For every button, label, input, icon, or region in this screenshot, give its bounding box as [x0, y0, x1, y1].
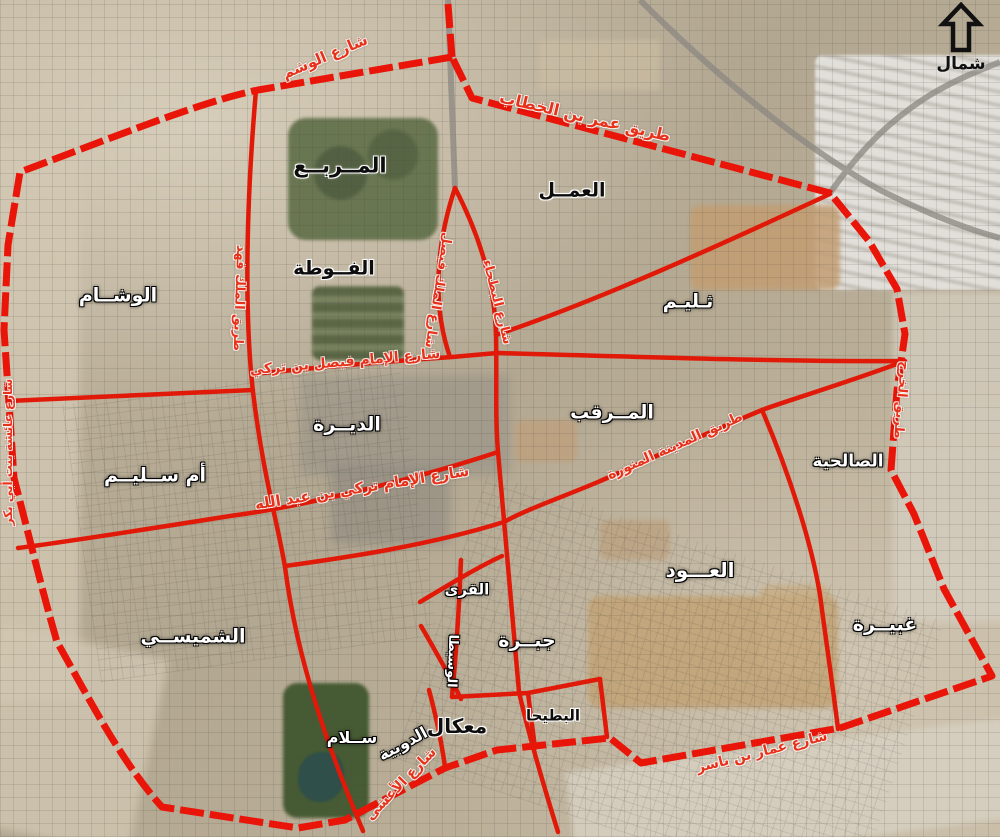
district-label-al-marqab: المــرقب	[570, 404, 654, 423]
wisham-umm-sulaim-divider-line	[8, 390, 253, 401]
king-fahd-road-label: طريق الملك فهد	[231, 245, 248, 351]
district-label-ash-shumaisi: الشميســي	[140, 628, 245, 647]
district-label-al-butayha: البطيحا	[526, 709, 580, 724]
district-label-umm-sulaim: أم ســليــم	[104, 467, 206, 486]
district-label-al-wisham: الوشــام	[79, 287, 157, 306]
aisha-bint-abibakr-street-label: شارع عائشة بنت أبي بكر	[2, 379, 14, 526]
butayha-east-line	[600, 679, 607, 737]
boundary-lines-layer	[0, 0, 1000, 837]
compass: شمال	[925, 2, 997, 74]
madinah-road-west-line	[285, 522, 504, 566]
satellite-map: المــربــع العمــل الفــوطة الوشــام ثـل…	[0, 0, 1000, 837]
district-label-al-oud: العـــود	[666, 560, 735, 580]
district-label-al-qura: القرى	[445, 583, 490, 598]
district-label-mikal: معكال	[427, 716, 487, 736]
district-label-al-futah: الفــوطة	[293, 260, 375, 279]
district-label-ghubairah: غبيــرة	[853, 616, 918, 635]
thulaim-marqab-divider-line	[497, 353, 903, 361]
district-label-ad-dirah: الديــرة	[313, 416, 381, 435]
amal-thulaim-divider-line	[496, 194, 830, 335]
gray-highways	[448, 0, 1000, 238]
district-label-as-salhiyah: الصالحية	[812, 454, 883, 471]
district-label-al-wusaita: الوسيطا	[445, 634, 460, 688]
king-fahd-road-line	[247, 90, 363, 831]
district-label-jabrah: جبــرة	[498, 632, 555, 651]
district-label-al-amal: العمــل	[538, 182, 605, 201]
district-label-salam: ســلام	[327, 730, 378, 746]
compass-label: شمال	[925, 54, 997, 74]
district-label-al-murabba: المــربــع	[293, 156, 386, 177]
north-arrow-icon	[933, 2, 989, 54]
district-label-thulaim: ثـليـم	[663, 293, 714, 312]
